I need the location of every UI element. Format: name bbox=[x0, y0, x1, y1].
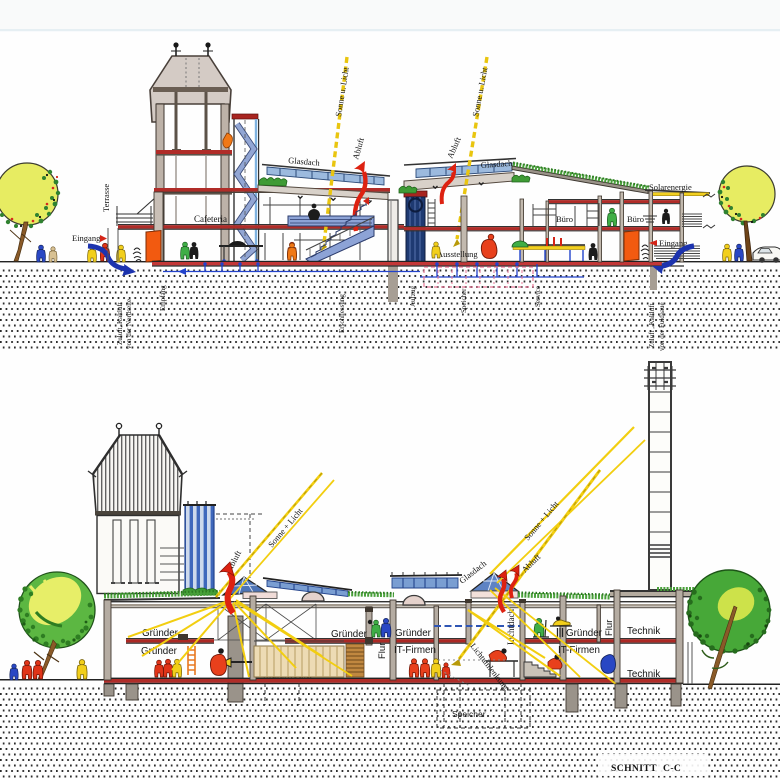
svg-text:Gründer: Gründer bbox=[141, 646, 178, 657]
svg-text:Büro: Büro bbox=[627, 214, 644, 224]
svg-text:Ausstellung: Ausstellung bbox=[437, 249, 478, 259]
svg-text:von der Nordseite: von der Nordseite bbox=[125, 299, 133, 349]
svg-text:Speicher: Speicher bbox=[460, 288, 468, 313]
svg-text:Erschliessung: Erschliessung bbox=[338, 294, 346, 333]
svg-text:Eingang: Eingang bbox=[72, 233, 101, 243]
svg-text:Büro: Büro bbox=[556, 214, 573, 224]
svg-text:Zuluft, Kaltluft: Zuluft, Kaltluft bbox=[116, 302, 124, 345]
svg-text:Technik: Technik bbox=[627, 669, 660, 680]
svg-text:C-C: C-C bbox=[663, 763, 681, 774]
svg-text:Flur: Flur bbox=[604, 620, 615, 636]
svg-text:Technik: Technik bbox=[627, 626, 660, 637]
svg-text:Gründer: Gründer bbox=[566, 628, 603, 639]
svg-text:Aufzug: Aufzug bbox=[409, 286, 417, 307]
svg-text:von der Fuldaaue: von der Fuldaaue bbox=[658, 302, 666, 351]
svg-text:SCHNITT: SCHNITT bbox=[611, 763, 657, 774]
svg-text:Service: Service bbox=[534, 286, 542, 307]
svg-text:Flur: Flur bbox=[377, 643, 388, 659]
svg-text:Zuluft , Kaltluft: Zuluft , Kaltluft bbox=[648, 303, 656, 348]
svg-text:Empfang: Empfang bbox=[159, 285, 167, 311]
svg-text:Solarenergie: Solarenergie bbox=[649, 182, 692, 192]
svg-text:IT-Firmen: IT-Firmen bbox=[394, 645, 436, 656]
svg-text:Gründer: Gründer bbox=[331, 629, 368, 640]
svg-text:Gründer: Gründer bbox=[395, 628, 432, 639]
svg-text:Cafeteria: Cafeteria bbox=[194, 214, 227, 224]
svg-text:Speicher: Speicher bbox=[452, 709, 486, 719]
svg-text:Terrasse: Terrasse bbox=[101, 184, 111, 212]
